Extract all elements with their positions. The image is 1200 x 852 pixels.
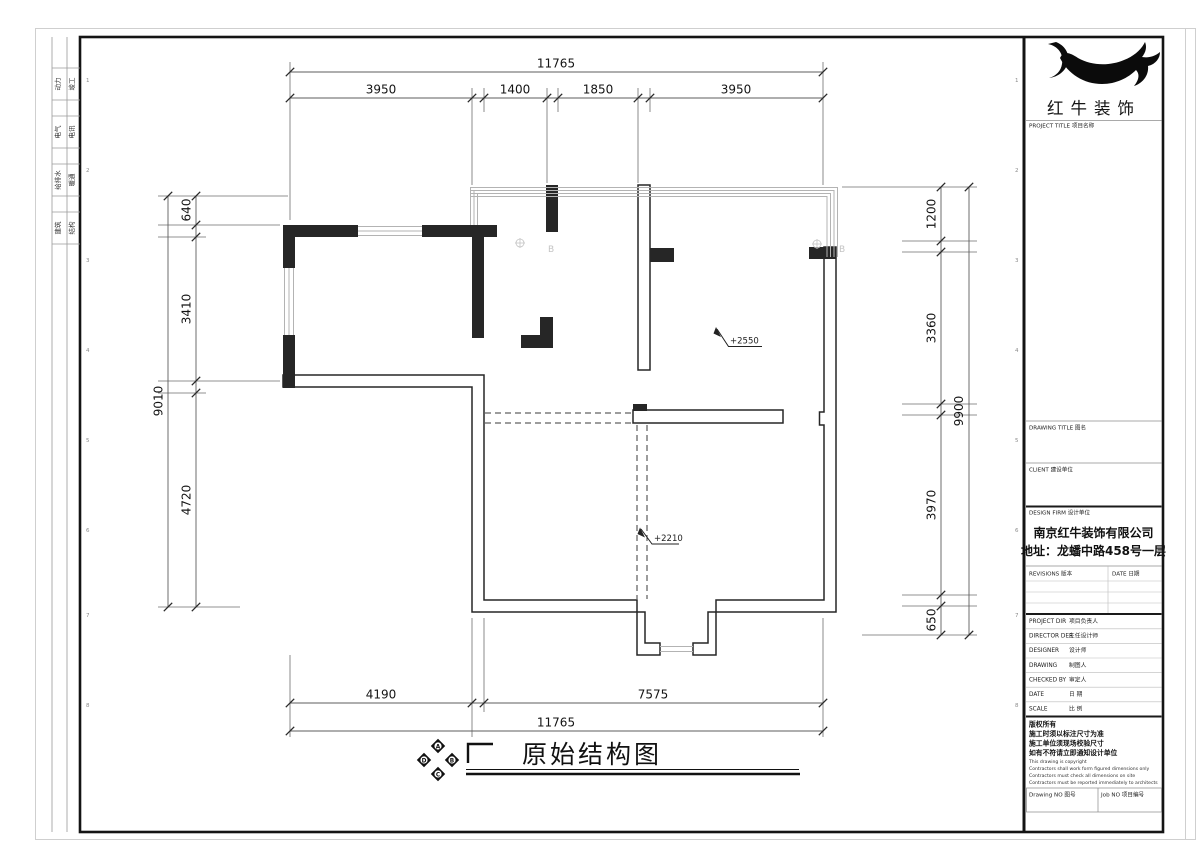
grid-number: 3 [1015,258,1019,264]
grid-number: 4 [86,348,90,354]
grid-number: 7 [1015,613,1019,619]
strip-label: 电气 [53,125,62,139]
logo-bull-icon [1048,42,1160,86]
row-label-cn: 主任设计师 [1069,632,1098,640]
dimensions: 11765 3950 1400 1850 3950 4190 7575 1176… [152,57,978,738]
row-label-cn: 比 例 [1069,705,1083,713]
wall-room-left-lower [283,335,295,388]
wall-kitchen-l-vertical [540,317,553,337]
height-annotations: +2550 +2210 [638,327,763,544]
strip-label: 暖通 [67,173,76,187]
sheet-borders [36,29,1196,840]
dim-left-seg: 4720 [180,485,194,516]
wall-stub-top [546,185,558,232]
entry-jamb-right [693,612,716,655]
copyright-line-en: Contractors shall work form figured dime… [1029,766,1150,772]
title-block: 红牛装饰 PROJECT TITLE 项目名称 DRAWING TITLE 图名… [1021,42,1166,812]
row-label-en: DESIGNER [1029,648,1059,654]
marker-letter: B [450,758,455,764]
grid-number: 3 [86,258,90,264]
grid-number: 6 [86,528,90,534]
drawing-no-label: Drawing NO 图号 [1029,791,1076,799]
job-no-label: Job NO 项目编号 [1100,791,1145,799]
firm-name: 南京红牛装饰有限公司 [1033,525,1153,540]
floorplan-drawing: 动力 竣工 电气 电讯 给排水 暖通 建筑 结构 1 2 3 4 5 6 7 8… [0,0,1200,852]
strip-label: 建筑 [53,221,62,235]
strip-label: 给排水 [53,170,62,190]
wall-room-right [472,237,484,338]
strip-label: 电讯 [67,125,76,139]
dim-top-overall: 11765 [537,57,575,71]
walls-outline [283,185,836,655]
dim-bottom-seg: 4190 [366,688,397,702]
balcony-glazing [470,191,834,258]
firm-address: 地址：龙蟠中路458号一层 [1021,543,1166,558]
wall-stub-right [809,247,836,259]
fixture-symbols: B B [515,238,845,255]
grid-number: 7 [86,613,90,619]
personnel-table: PROJECT DIR 项目负责人 DIRECTOR DER 主任设计师 DES… [1026,617,1162,713]
cad-sheet: 动力 竣工 电气 电讯 给排水 暖通 建筑 结构 1 2 3 4 5 6 7 8… [0,0,1200,852]
wall-room-top-left [283,225,358,237]
dim-top-seg: 1850 [583,83,614,97]
strip-cell-dividers [52,68,80,244]
copyright-line-en: Contractors must be reported immediately… [1029,780,1158,786]
marker-letter: C [436,772,440,778]
dim-right-seg: 3970 [925,490,939,521]
copyright-line: 如有不符请立即通知设计单位 [1029,748,1118,757]
drawing-title-label: DRAWING TITLE 图名 [1029,424,1086,432]
row-label-en: CHECKED BY [1029,677,1067,683]
dim-right-seg: 650 [925,609,939,632]
design-firm-label: DESIGN FIRM 设计单位 [1029,509,1090,517]
dim-left-seg: 3410 [180,294,194,325]
floor-plan: B B +2550 +2210 [283,185,845,655]
marker-letter: A [436,744,441,750]
dim-right-seg: 3360 [925,313,939,344]
copyright-note: 版权所有 施工时须以标注尺寸为准 施工单位须现场校验尺寸 如有不符请立即通知设计… [1028,720,1158,787]
strip-label: 结构 [67,221,76,235]
dim-ticks-left [164,192,200,611]
row-label-en: PROJECT DIR [1029,619,1066,625]
dim-top-seg: 3950 [366,83,397,97]
grid-number: 1 [86,78,90,84]
wall-room-top-right [422,225,497,237]
drawing-frame [80,37,1163,832]
wall-middle-vertical [638,185,650,370]
client-label: CLIENT 建设单位 [1029,466,1073,474]
flue-symbol: B [548,245,554,255]
wall-middle-bump [633,404,647,411]
beam-lines [485,413,647,599]
dim-bottom-overall: 11765 [537,716,575,730]
row-label-en: DIRECTOR DER [1029,634,1073,640]
dim-left-overall: 9010 [152,386,166,417]
dim-bottom-seg: 7575 [638,688,669,702]
grid-reference-numbers: 1 2 3 4 5 6 7 8 1 2 3 4 5 6 7 8 [86,78,1019,709]
grid-number: 1 [1015,78,1019,84]
row-label-en: DATE [1029,692,1044,698]
flue-symbol: B [839,245,845,255]
wall-middle-horizontal [633,410,783,423]
strip-label: 竣工 [67,77,76,91]
grid-number: 4 [1015,348,1019,354]
row-label-cn: 设计师 [1069,646,1087,654]
grid-number: 2 [86,168,90,174]
balcony-glazing [470,188,838,258]
wall-middle-protrusion [650,248,674,262]
row-label-cn: 审定人 [1069,675,1087,683]
revisions-label: REVISIONS 版本 [1029,570,1073,578]
row-label-cn: 项目负责人 [1069,617,1098,625]
plan-title-group: A B C D 原始结构图 [417,739,800,781]
logo-text: 红牛装饰 [1047,99,1141,118]
ceiling-height-upper: +2550 [730,337,759,347]
wall-lower-left [283,375,637,612]
dim-top-seg: 1400 [500,83,531,97]
row-label-en: DRAWING [1029,663,1058,669]
grid-number: 8 [86,703,90,709]
marker-letter: D [422,758,427,764]
entry-jamb-left [637,612,660,655]
strip-label: 动力 [53,78,62,91]
row-label-cn: 制图人 [1069,661,1087,669]
row-label-cn: 日 期 [1069,691,1083,698]
outer-trim-border [36,29,1196,840]
grid-number: 6 [1015,528,1019,534]
copyright-line: 施工时须以标注尺寸为准 [1029,729,1104,738]
copyright-line: 施工单位须现场校验尺寸 [1029,739,1104,748]
ceiling-height-lower: +2210 [654,534,683,544]
copyright-line-en: This drawing is copyright [1028,759,1087,765]
leader-arrow-icon [714,327,722,337]
plan-title: 原始结构图 [522,740,662,769]
dim-right-overall: 9900 [952,396,966,427]
project-title-label: PROJECT TITLE 项目名称 [1029,122,1095,130]
grid-number: 2 [1015,168,1019,174]
dim-right-seg: 1200 [925,199,939,230]
copyright-line-en: Contractors must check all dimensions on… [1029,773,1135,779]
elevation-marker-icon: A B C D [417,739,459,781]
discipline-strip: 动力 竣工 电气 电讯 给排水 暖通 建筑 结构 [53,77,76,235]
row-label-en: SCALE [1029,707,1048,713]
grid-number: 8 [1015,703,1019,709]
title-bracket-icon [468,744,493,763]
dim-left-seg: 640 [180,199,194,222]
grid-number: 5 [86,438,90,444]
grid-number: 5 [1015,438,1019,444]
wall-right [716,247,836,612]
date-label: DATE 日期 [1112,571,1140,578]
copyright-line: 版权所有 [1028,720,1056,729]
dim-top-seg: 3950 [721,83,752,97]
